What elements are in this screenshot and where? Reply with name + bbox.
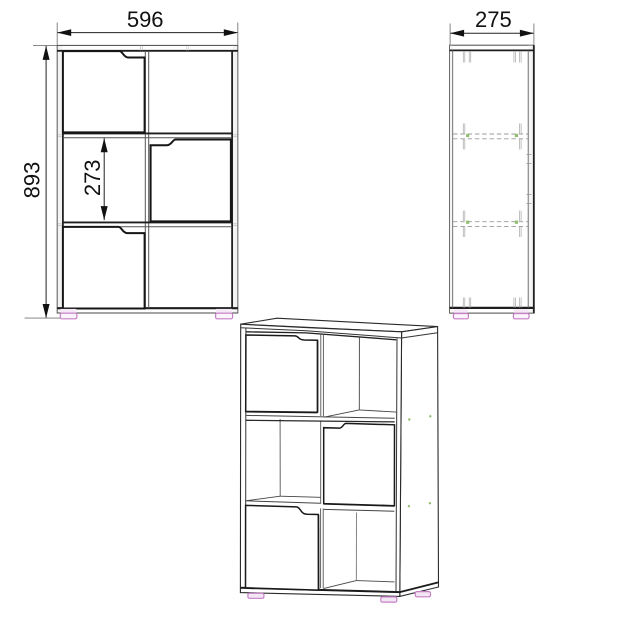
svg-text:275: 275 <box>475 7 512 32</box>
svg-text:893: 893 <box>20 162 45 199</box>
svg-text:273: 273 <box>80 159 105 196</box>
svg-text:596: 596 <box>127 7 164 32</box>
